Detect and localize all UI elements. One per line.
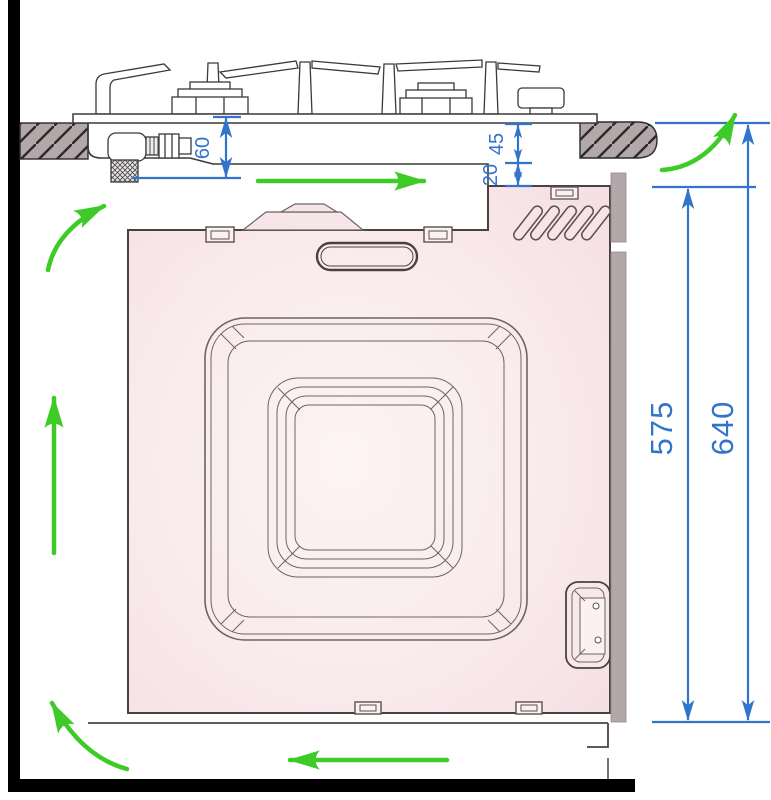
floor xyxy=(8,779,635,792)
dimension-label-20: 20 xyxy=(480,164,502,186)
wall-left xyxy=(8,0,20,792)
hob-grate-blade xyxy=(220,61,298,78)
upper-left-curve-arrow-icon xyxy=(48,206,104,270)
hob-grate-post xyxy=(382,64,396,114)
dimension-20 xyxy=(505,164,532,186)
hob-grate-blade xyxy=(312,61,380,74)
hob-grate-post xyxy=(484,62,498,114)
oven-rear-tab xyxy=(551,187,578,199)
hob-grate-left xyxy=(96,64,170,114)
dimension-label-575: 575 xyxy=(644,401,679,456)
dimension-label-60: 60 xyxy=(192,137,214,159)
dimension-45 xyxy=(505,124,532,163)
lower-left-curve-arrow-icon xyxy=(52,703,127,769)
cabinet-trim-bar xyxy=(611,173,626,722)
cabinet-base-lines xyxy=(88,723,608,779)
hob-grate-blade xyxy=(498,63,540,72)
hob-ignition-block xyxy=(518,88,564,115)
oven-hinge xyxy=(566,582,610,668)
oven-top-bump xyxy=(243,204,363,230)
worktop-left-section xyxy=(20,123,88,159)
hob-grate-blade xyxy=(396,60,482,71)
hob-burner-right xyxy=(400,83,472,114)
installation-diagram: 60 45 20 575 640 xyxy=(0,0,771,800)
hob-burner-left xyxy=(172,82,248,114)
dimension-label-45: 45 xyxy=(486,133,508,155)
dimension-label-640: 640 xyxy=(705,401,740,456)
hob-grate-post xyxy=(298,62,312,114)
diagram-canvas: 60 45 20 575 640 xyxy=(0,0,771,800)
hob-glass-top xyxy=(73,114,597,123)
worktop-right-section xyxy=(580,122,657,158)
oven xyxy=(128,186,612,714)
